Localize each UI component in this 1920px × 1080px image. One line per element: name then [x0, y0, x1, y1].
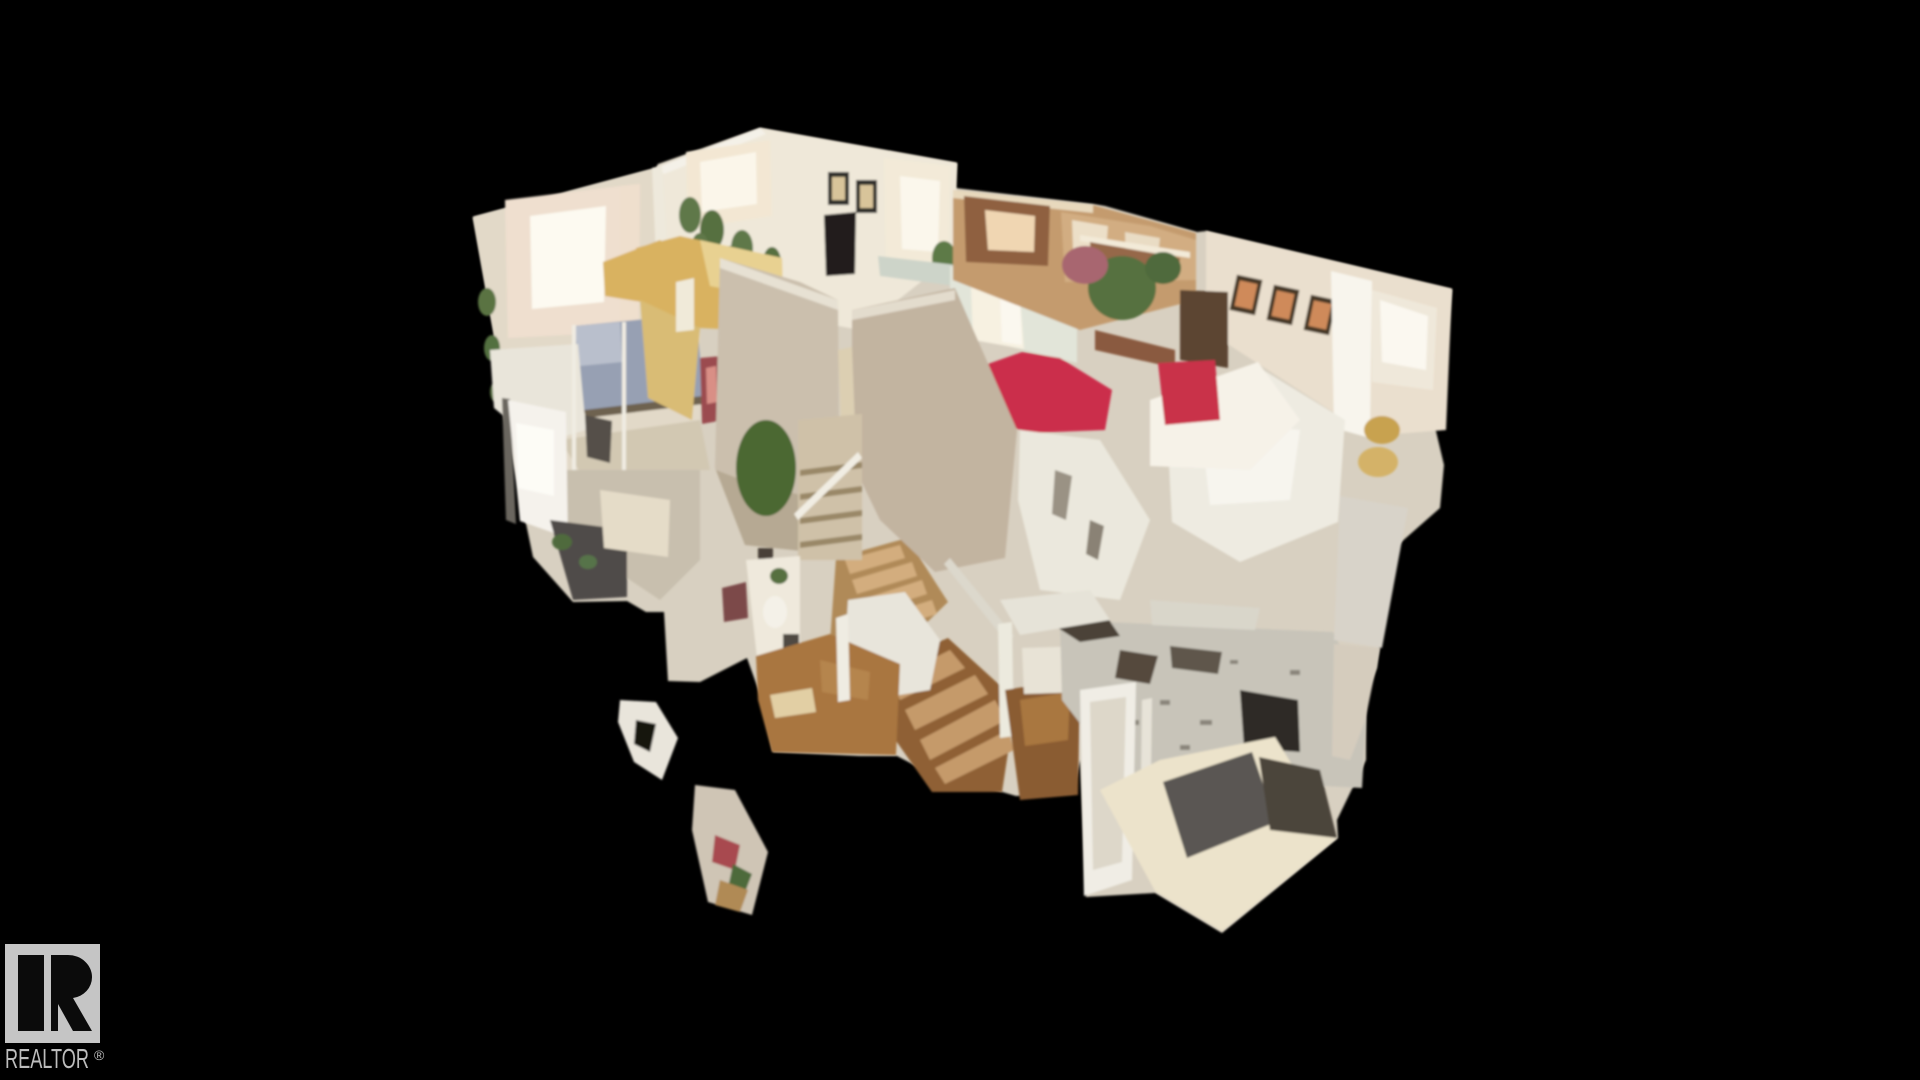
- svg-text:®: ®: [94, 1047, 105, 1063]
- svg-text:REALTOR: REALTOR: [5, 1043, 89, 1074]
